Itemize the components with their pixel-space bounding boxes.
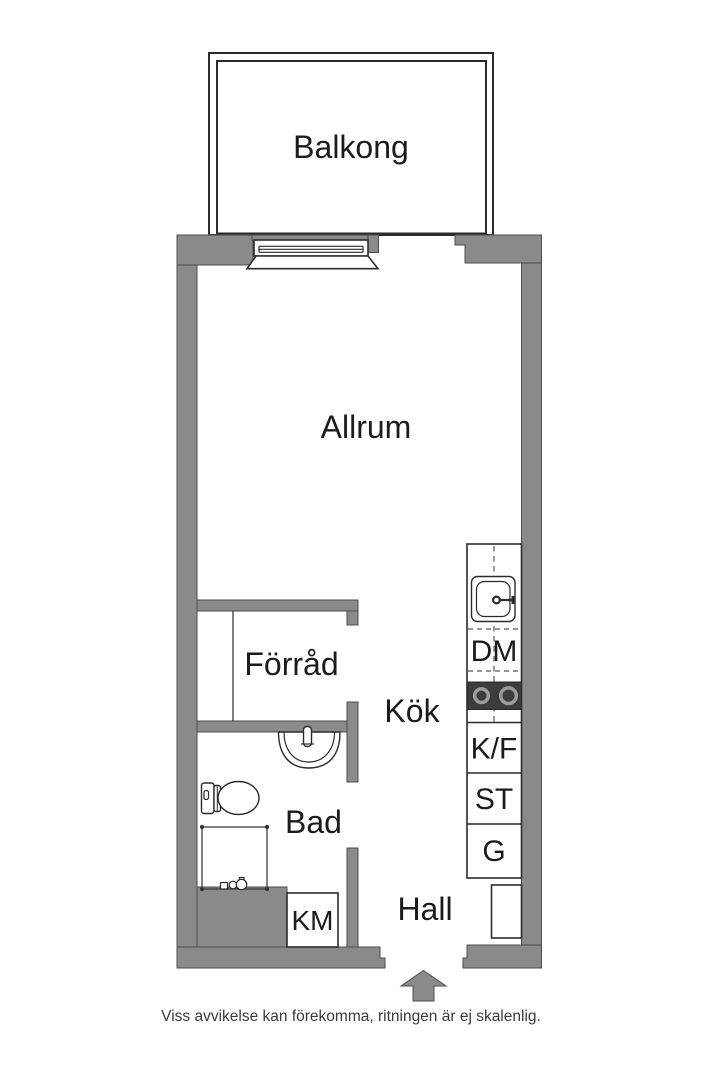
- wall-storage-south: [197, 721, 348, 732]
- hall-wardrobe: [492, 885, 522, 938]
- disclaimer-text: Viss avvikelse kan förekomma, ritningen …: [161, 1008, 541, 1025]
- toilet-tank-icon: [202, 783, 215, 814]
- balcony-door: [247, 240, 378, 269]
- wall-right: [522, 263, 542, 968]
- wall-chunk-bathroom-south: [197, 887, 287, 947]
- room-label-living-room: Allrum: [321, 409, 412, 445]
- appliance-label-tall-cabinet: ST: [475, 783, 513, 816]
- wall-storage-north: [197, 600, 358, 611]
- room-label-storage: Förråd: [244, 646, 338, 682]
- balcony-door-frame: [254, 240, 368, 256]
- appliance-label-fridge-freezer: K/F: [471, 733, 518, 766]
- appliance-label-washing-machine: KM: [292, 905, 334, 936]
- sink-tap-handle: [512, 596, 515, 604]
- shower-corner-dot: [200, 825, 204, 829]
- shower-corner-dot: [200, 887, 204, 891]
- wall-top-left: [177, 235, 253, 265]
- wall-storage-stub: [347, 611, 358, 625]
- shower-corner-dot: [265, 887, 269, 891]
- wall-left: [177, 235, 197, 968]
- room-label-hall: Hall: [397, 891, 452, 927]
- wall-bathroom-east-upper: [347, 702, 358, 782]
- shower-corner-dot: [265, 825, 269, 829]
- floor-plan-page: Balkong Allrum Förråd Kök Bad Hall DM K/…: [0, 0, 720, 1080]
- appliance-label-dishwasher: DM: [471, 635, 518, 668]
- kitchen-counter: [467, 544, 522, 878]
- wall-bottom-right: [463, 945, 542, 968]
- appliance-label-wardrobe: G: [482, 835, 505, 868]
- stove-burner-left-icon: [475, 689, 489, 703]
- sink-drain-icon: [493, 597, 500, 604]
- wall-stub-top: [368, 235, 379, 253]
- room-label-kitchen: Kök: [384, 693, 440, 729]
- shower-icon: [202, 827, 267, 889]
- room-label-bathroom: Bad: [285, 804, 342, 840]
- wall-bottom-left: [177, 947, 385, 968]
- room-label-balcony: Balkong: [293, 129, 409, 165]
- entrance-arrow-icon: [401, 971, 446, 1002]
- floor-plan: Balkong Allrum Förråd Kök Bad Hall DM K/…: [0, 0, 720, 1080]
- stove-burner-right-icon: [501, 688, 517, 704]
- wall-bathroom-east-lower: [347, 848, 358, 947]
- toilet-bowl-icon: [218, 782, 259, 815]
- balcony-door-threshold: [247, 256, 378, 269]
- shower-mixer-icon: [221, 878, 247, 890]
